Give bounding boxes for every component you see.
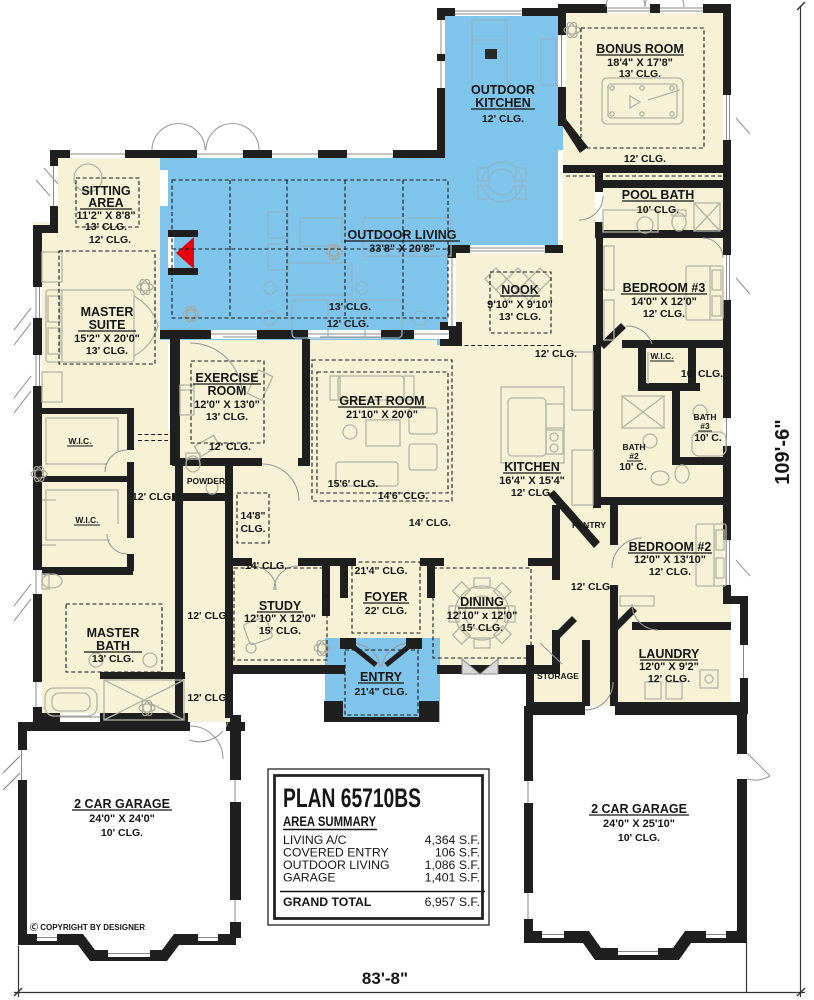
svg-text:GRAND TOTAL: GRAND TOTAL	[283, 895, 372, 909]
svg-text:15'6' CLG.: 15'6' CLG.	[328, 478, 379, 490]
svg-text:ROOM: ROOM	[208, 384, 247, 398]
svg-text:#3: #3	[700, 421, 710, 431]
svg-text:15'2" X 20'0": 15'2" X 20'0"	[74, 333, 140, 345]
svg-text:14' CLG.: 14' CLG.	[409, 517, 451, 529]
svg-text:13' CLG.: 13' CLG.	[499, 311, 541, 323]
svg-text:9'10" X 9'10": 9'10" X 9'10"	[487, 299, 553, 311]
svg-text:POOL BATH: POOL BATH	[622, 188, 694, 202]
svg-text:2 CAR GARAGE: 2 CAR GARAGE	[74, 797, 170, 811]
svg-text:10' C.: 10' C.	[619, 461, 647, 473]
svg-text:12' CLG.: 12' CLG.	[89, 234, 131, 246]
svg-text:10' C.: 10' C.	[694, 432, 722, 444]
svg-text:12' CLG.: 12' CLG.	[511, 487, 553, 499]
svg-text:22' CLG.: 22' CLG.	[365, 605, 407, 617]
svg-text:Ⓒ COPYRIGHT BY DESIGNER: Ⓒ COPYRIGHT BY DESIGNER	[30, 922, 145, 932]
svg-text:12'0" X 9'2": 12'0" X 9'2"	[639, 661, 699, 673]
svg-text:13' CLG.: 13' CLG.	[206, 411, 248, 423]
svg-text:109'-6": 109'-6"	[772, 419, 794, 484]
svg-text:10' CLG.: 10' CLG.	[637, 204, 679, 216]
svg-text:12' CLG.: 12' CLG.	[571, 581, 613, 593]
svg-text:STORAGE: STORAGE	[537, 671, 579, 681]
svg-text:14'8": 14'8"	[241, 510, 266, 522]
svg-text:16'4" X 15'4": 16'4" X 15'4"	[499, 475, 565, 487]
svg-text:2 CAR GARAGE: 2 CAR GARAGE	[591, 802, 687, 816]
svg-text:15' CLG.: 15' CLG.	[461, 622, 503, 634]
svg-text:GARAGE: GARAGE	[283, 871, 336, 885]
svg-text:POWDER: POWDER	[187, 476, 225, 486]
svg-text:AREA SUMMARY: AREA SUMMARY	[283, 814, 376, 829]
svg-text:13' CLG.: 13' CLG.	[86, 345, 128, 357]
svg-text:CLG.: CLG.	[240, 523, 265, 535]
svg-text:MASTER: MASTER	[81, 305, 134, 319]
svg-text:12' CLG.: 12' CLG.	[535, 348, 577, 360]
svg-text:83'-8": 83'-8"	[362, 969, 408, 988]
svg-text:W.I.C.: W.I.C.	[75, 515, 98, 525]
svg-text:13' CLG.: 13' CLG.	[329, 301, 371, 313]
svg-text:NOOK: NOOK	[501, 283, 539, 297]
svg-text:12' CLG.: 12' CLG.	[327, 318, 369, 330]
svg-text:10' CLG.: 10' CLG.	[101, 827, 143, 839]
svg-text:BEDROOM #2: BEDROOM #2	[629, 540, 712, 554]
svg-text:W.I.C.: W.I.C.	[650, 351, 673, 361]
svg-text:GREAT ROOM: GREAT ROOM	[339, 394, 424, 408]
svg-text:24'0" X 25'10": 24'0" X 25'10"	[603, 818, 675, 830]
svg-text:DINING: DINING	[460, 595, 504, 609]
svg-text:FOYER: FOYER	[364, 590, 407, 604]
svg-text:13' CLG.: 13' CLG.	[619, 68, 661, 80]
svg-text:24'0" X 24'0": 24'0" X 24'0"	[89, 813, 155, 825]
svg-text:AREA: AREA	[88, 196, 123, 210]
svg-text:33'8" X 20'8": 33'8" X 20'8"	[369, 243, 435, 255]
svg-text:12' CLG.: 12' CLG.	[643, 308, 685, 320]
svg-text:OUTDOOR: OUTDOOR	[471, 83, 535, 97]
svg-text:BEDROOM #3: BEDROOM #3	[623, 281, 706, 295]
svg-text:STUDY: STUDY	[259, 599, 302, 613]
svg-text:12' CLG: 12' CLG	[187, 610, 226, 622]
svg-text:12' CLG.: 12' CLG.	[209, 441, 251, 453]
svg-text:14' CLG.: 14' CLG.	[245, 560, 287, 572]
svg-text:KITCHEN: KITCHEN	[475, 96, 531, 110]
svg-text:10' CLG.: 10' CLG.	[618, 832, 660, 844]
svg-text:BATH: BATH	[96, 639, 130, 653]
svg-text:12'10" X 12'0": 12'10" X 12'0"	[244, 613, 316, 625]
svg-text:12' CLG.: 12' CLG.	[649, 566, 691, 578]
svg-text:BONUS ROOM: BONUS ROOM	[596, 42, 684, 56]
svg-text:12' CLG.: 12' CLG.	[132, 491, 174, 503]
svg-text:13' CLG.: 13' CLG.	[92, 653, 134, 665]
svg-text:15' CLG.: 15' CLG.	[259, 625, 301, 637]
svg-text:ENTRY: ENTRY	[360, 670, 403, 684]
svg-text:1,401 S.F.: 1,401 S.F.	[425, 871, 480, 885]
svg-text:13' CLG.: 13' CLG.	[85, 221, 127, 233]
svg-text:LAUNDRY: LAUNDRY	[639, 647, 700, 661]
svg-text:14'6' CLG.: 14'6' CLG.	[378, 490, 429, 502]
svg-text:12' CLG.: 12' CLG.	[482, 113, 524, 125]
svg-text:12'10" x 12'0": 12'10" x 12'0"	[447, 610, 518, 622]
svg-text:MASTER: MASTER	[87, 626, 140, 640]
svg-text:PLAN 65710BS: PLAN 65710BS	[283, 783, 421, 813]
svg-text:21'4" CLG.: 21'4" CLG.	[355, 565, 408, 577]
svg-text:KITCHEN: KITCHEN	[504, 460, 560, 474]
svg-text:14'0" X 12'0": 14'0" X 12'0"	[631, 296, 697, 308]
svg-text:OUTDOOR LIVING: OUTDOOR LIVING	[347, 228, 456, 242]
svg-text:12'0" X 13'0": 12'0" X 13'0"	[194, 399, 260, 411]
svg-text:12' CLG: 12' CLG	[187, 692, 226, 704]
svg-text:6,957 S.F.: 6,957 S.F.	[425, 895, 480, 909]
svg-text:W.I.C.: W.I.C.	[68, 436, 91, 446]
svg-text:21'4" CLG.: 21'4" CLG.	[355, 686, 408, 698]
svg-text:10' CLG.: 10' CLG.	[681, 368, 723, 380]
svg-text:EXERCISE: EXERCISE	[195, 371, 258, 385]
svg-text:21'10" X 20'0": 21'10" X 20'0"	[346, 409, 418, 421]
svg-text:12'0" X 13'10": 12'0" X 13'10"	[634, 554, 706, 566]
svg-text:#2: #2	[629, 451, 639, 461]
svg-text:12' CLG.: 12' CLG.	[624, 153, 666, 165]
svg-text:SUITE: SUITE	[89, 318, 126, 332]
svg-text:12' CLG.: 12' CLG.	[648, 673, 690, 685]
svg-text:PANTRY: PANTRY	[572, 520, 606, 530]
